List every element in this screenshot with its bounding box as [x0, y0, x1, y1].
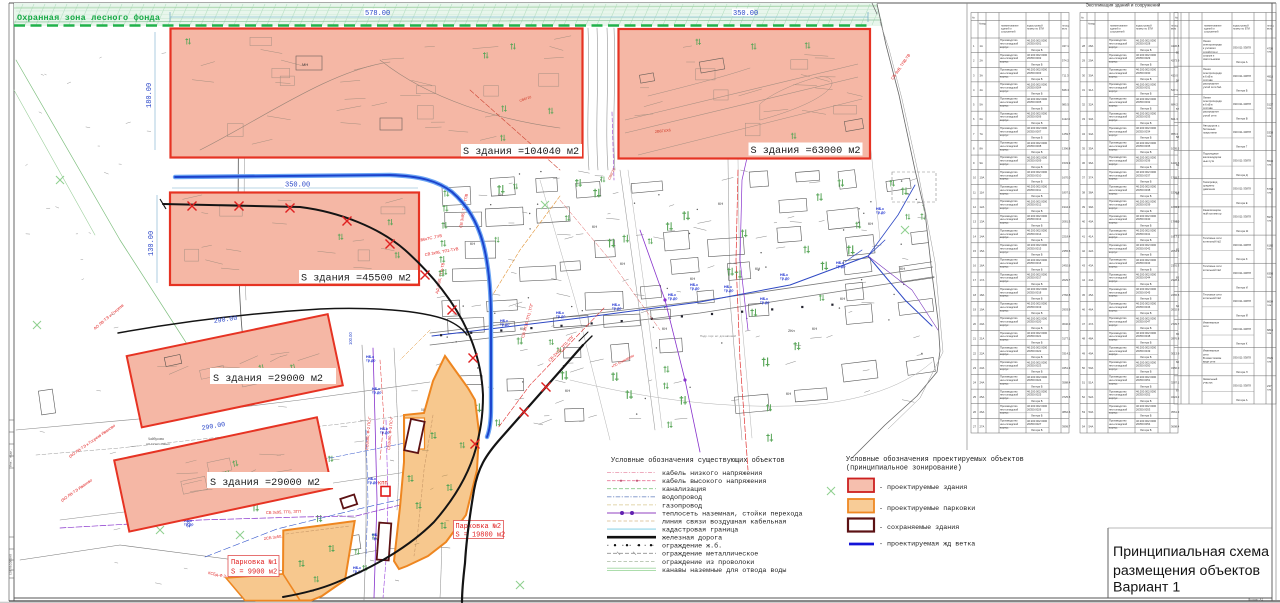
svg-text:53: 53: [1082, 410, 1085, 414]
svg-text:- проектируемые здания: - проектируемые здания: [879, 484, 967, 492]
svg-text:22А: 22А: [980, 351, 985, 355]
svg-text:- проектируемая жд ветка: - проектируемая жд ветка: [879, 541, 975, 549]
svg-text:нно-складской: нно-складской: [1109, 393, 1128, 397]
svg-text:030:011-33878: 030:011-33878: [1233, 102, 1251, 106]
svg-text:нно-складской: нно-складской: [1109, 378, 1128, 382]
svg-text:размещения объектов: размещения объектов: [1113, 563, 1260, 579]
svg-text:1369.7: 1369.7: [1171, 176, 1180, 180]
svg-text:Литера Б: Литера Б: [1140, 297, 1152, 301]
svg-text:корпус: корпус: [1000, 368, 1009, 371]
svg-text:26350:0017: 26350:0017: [1027, 276, 1042, 280]
svg-text:корпус: корпус: [1000, 295, 1009, 298]
svg-text:26350:0039: 26350:0039: [1136, 203, 1151, 207]
svg-text:Производство: Производство: [1000, 68, 1018, 72]
svg-text:нно-складской: нно-складской: [1000, 334, 1019, 338]
svg-text:Производство: Производство: [1109, 331, 1127, 335]
svg-text:Земельный: Земельный: [1203, 377, 1218, 381]
svg-text:26350:0028: 26350:0028: [1136, 42, 1151, 46]
svg-text:распределит: распределит: [1203, 111, 1220, 114]
svg-text:корпус: корпус: [1000, 309, 1009, 312]
svg-text:030:011-33878: 030:011-33878: [1233, 158, 1251, 162]
svg-text:нно-складской: нно-складской: [1109, 188, 1128, 192]
svg-text:Экспликация зданий и сооружени: Экспликация зданий и сооружений: [1086, 2, 1161, 8]
svg-text:Производство: Производство: [1000, 360, 1018, 364]
svg-text:Производство: Производство: [1109, 316, 1127, 320]
svg-text:4А: 4А: [980, 88, 983, 92]
svg-text:в 6 кВ в: в 6 кВ в: [1203, 74, 1213, 78]
svg-text:26350:0045: 26350:0045: [1136, 290, 1151, 294]
svg-text:2355.5: 2355.5: [1062, 249, 1071, 253]
svg-text:26350:0047: 26350:0047: [1136, 320, 1151, 324]
svg-text:22: 22: [973, 351, 976, 355]
svg-text:64: 64: [1176, 304, 1179, 308]
svg-text:котельной №2: котельной №2: [1203, 240, 1221, 244]
svg-text:кадастровая граница: кадастровая граница: [662, 527, 738, 535]
svg-text:нно-складской: нно-складской: [1109, 232, 1128, 236]
svg-text:нно-складской: нно-складской: [1109, 173, 1128, 177]
svg-text:Производство: Производство: [1000, 82, 1018, 86]
svg-text:Производство: Производство: [1109, 170, 1127, 174]
svg-text:31: 31: [1082, 88, 1085, 92]
svg-text:нно-складской: нно-складской: [1109, 305, 1128, 309]
svg-text:Согласовано: Согласовано: [9, 554, 13, 575]
svg-text:44: 44: [1082, 278, 1085, 282]
svg-text:нно-складской: нно-складской: [1000, 246, 1019, 250]
svg-text:нно-складской: нно-складской: [1109, 115, 1128, 119]
svg-text:Производство: Производство: [1000, 199, 1018, 203]
svg-text:3999.7: 3999.7: [1062, 424, 1071, 428]
svg-text:тр.до: тр.до: [690, 287, 700, 291]
svg-text:нно-складской: нно-складской: [1109, 71, 1128, 75]
svg-text:29А: 29А: [1089, 59, 1094, 63]
svg-text:В известковом: В известковом: [1203, 356, 1221, 360]
svg-text:5971: 5971: [1267, 215, 1273, 219]
svg-text:Литера Б: Литера Б: [1140, 106, 1152, 110]
svg-text:сооружений: сооружений: [1110, 30, 1125, 34]
svg-text:Литера Б: Литера Б: [1031, 150, 1043, 154]
svg-text:узлой сети: узлой сети: [1203, 113, 1217, 117]
svg-text:Литера И: Литера И: [1236, 285, 1248, 289]
svg-text:38А: 38А: [1089, 190, 1094, 194]
svg-text:Литера Б: Литера Б: [1140, 326, 1152, 330]
svg-text:350.00: 350.00: [733, 10, 758, 18]
svg-text:ный коллектор: ный коллектор: [1203, 212, 1222, 216]
svg-text:№кад: №кад: [1088, 23, 1095, 26]
svg-text:6604: 6604: [1267, 300, 1273, 304]
svg-text:26350:0004: 26350:0004: [1027, 86, 1042, 90]
svg-text:п.м: п.м: [1267, 332, 1271, 335]
svg-text:нно-складской: нно-складской: [1000, 86, 1019, 90]
svg-text:нно-складской: нно-складской: [1000, 378, 1019, 382]
svg-text:нно-складской: нно-складской: [1000, 144, 1019, 148]
svg-text:нно-складской: нно-складской: [1000, 100, 1019, 104]
svg-text:26350:0040: 26350:0040: [1136, 217, 1151, 221]
svg-text:26А: 26А: [980, 410, 985, 414]
svg-text:30: 30: [1082, 73, 1085, 77]
svg-text:6393: 6393: [1267, 272, 1273, 276]
svg-text:4916: 4916: [1267, 74, 1273, 78]
svg-text:сети: сети: [1203, 353, 1209, 356]
svg-text:нно-складской: нно-складской: [1000, 349, 1019, 353]
svg-text:Производство: Производство: [1000, 287, 1018, 291]
svg-text:нно-складской: нно-складской: [1000, 42, 1019, 46]
svg-text:030:011-33878: 030:011-33878: [1233, 271, 1251, 275]
svg-text:2739.7: 2739.7: [1171, 322, 1180, 326]
svg-text:Производство: Производство: [1109, 38, 1127, 42]
svg-text:Газопровод: Газопровод: [1203, 180, 1218, 184]
svg-text:Литера Б: Литера Б: [1031, 399, 1043, 403]
svg-text:Производство: Производство: [1000, 38, 1018, 42]
svg-text:Литера Б: Литера Б: [1031, 92, 1043, 96]
svg-text:5А: 5А: [980, 103, 983, 107]
svg-text:26350:0019: 26350:0019: [1027, 305, 1042, 309]
svg-text:18: 18: [973, 293, 976, 297]
svg-text:26350:0052: 26350:0052: [1136, 393, 1151, 397]
svg-text:1095.5: 1095.5: [1171, 147, 1180, 151]
svg-text:Производство: Производство: [1000, 228, 1018, 232]
svg-text:Линия: Линия: [1203, 67, 1211, 71]
svg-text:57: 57: [1176, 107, 1179, 111]
svg-text:6815: 6815: [1267, 328, 1273, 332]
svg-text:п.м: п.м: [1267, 304, 1271, 307]
svg-text:Производство: Производство: [1109, 126, 1127, 130]
svg-text:Производство: Производство: [1109, 141, 1127, 145]
svg-text:030:011-33878: 030:011-33878: [1233, 130, 1251, 134]
svg-text:26350:0033: 26350:0033: [1136, 115, 1151, 119]
svg-text:3040.0: 3040.0: [1062, 322, 1071, 326]
svg-text:КН: КН: [786, 391, 791, 396]
svg-text:26350:0054: 26350:0054: [1136, 422, 1151, 426]
svg-text:410.0: 410.0: [1171, 73, 1178, 77]
svg-text:корпус: корпус: [1109, 148, 1118, 151]
svg-text:нно-складской: нно-складской: [1000, 173, 1019, 177]
svg-text:корпус: корпус: [1000, 163, 1009, 166]
svg-text:Литера Б: Литера Б: [1031, 121, 1043, 125]
svg-text:железнодорож: железнодорож: [1203, 156, 1221, 159]
svg-text:нно-складской: нно-складской: [1000, 56, 1019, 60]
svg-text:ограждение ж.б.: ограждение ж.б.: [662, 542, 722, 551]
svg-text:Литера Б: Литера Б: [1031, 311, 1043, 315]
svg-text:корпус: корпус: [1109, 178, 1118, 181]
svg-text:030:011-33878: 030:011-33878: [1233, 243, 1251, 247]
svg-text:Производство: Производство: [1000, 419, 1018, 423]
svg-text:канализация: канализация: [662, 486, 706, 494]
svg-text:корпус: корпус: [1109, 192, 1118, 195]
svg-text:газопровод: газопровод: [662, 502, 702, 510]
svg-text:п.м: п.м: [1267, 191, 1271, 194]
svg-text:52А: 52А: [1089, 395, 1094, 399]
svg-text:Производство: Производство: [1000, 155, 1018, 159]
svg-text:Литера Б: Литера Б: [1031, 106, 1043, 110]
svg-text:корпус: корпус: [1109, 353, 1118, 356]
svg-text:26350:0038: 26350:0038: [1136, 188, 1151, 192]
svg-text:корпус: корпус: [1000, 236, 1009, 239]
svg-text:030:011-33878: 030:011-33878: [1233, 384, 1251, 388]
svg-text:№кад: №кад: [979, 23, 986, 26]
svg-text:кв.м: кв.м: [1062, 28, 1067, 31]
svg-text:Производство: Производство: [1109, 199, 1127, 203]
svg-text:корпус: корпус: [1109, 134, 1118, 137]
svg-text:28А: 28А: [1089, 44, 1094, 48]
svg-text:нно-складской: нно-складской: [1000, 188, 1019, 192]
svg-text:2629.7: 2629.7: [1062, 278, 1071, 282]
svg-text:Литера Б: Литера Б: [1236, 88, 1248, 92]
svg-text:4273.9: 4273.9: [1171, 59, 1180, 63]
svg-text:тр.до: тр.до: [724, 289, 734, 293]
svg-text:67: 67: [1176, 388, 1179, 392]
svg-text:Линия: Линия: [1203, 39, 1211, 43]
svg-text:корпус: корпус: [1000, 324, 1009, 327]
svg-text:26350:0049: 26350:0049: [1136, 349, 1151, 353]
svg-text:корпус: корпус: [1000, 61, 1009, 64]
svg-text:№: №: [1081, 17, 1084, 20]
svg-text:Литера Г: Литера Г: [1236, 145, 1248, 149]
svg-text:Вариант 1: Вариант 1: [1113, 580, 1180, 596]
svg-text:Тепловые сети: Тепловые сети: [1203, 236, 1222, 240]
svg-text:Литера Б: Литера Б: [1140, 428, 1152, 432]
svg-text:нно-складской: нно-складской: [1109, 129, 1128, 133]
svg-text:39: 39: [1082, 205, 1085, 209]
svg-text:виде сети: виде сети: [1203, 361, 1216, 364]
svg-text:3150.0: 3150.0: [1171, 366, 1180, 370]
svg-text:3451.3: 3451.3: [1062, 366, 1071, 370]
svg-text:Литера Б: Литера Б: [1140, 63, 1152, 67]
svg-text:19: 19: [973, 307, 976, 311]
svg-text:30А: 30А: [1089, 73, 1094, 77]
svg-text:26350:0043: 26350:0043: [1136, 261, 1151, 265]
svg-text:Литера А: Литера А: [1236, 60, 1248, 64]
svg-text:Производство: Производство: [1109, 419, 1127, 423]
svg-text:26350:0023: 26350:0023: [1027, 364, 1042, 368]
svg-text:53А: 53А: [1089, 410, 1094, 414]
svg-text:корпус: корпус: [1000, 251, 1009, 254]
svg-text:684.2: 684.2: [1171, 103, 1178, 107]
svg-text:нно-складской: нно-складской: [1000, 407, 1019, 411]
svg-text:номер по БТИ: номер по БТИ: [1027, 27, 1044, 31]
svg-text:51: 51: [1082, 381, 1085, 385]
svg-text:14: 14: [973, 234, 976, 238]
svg-text:1944.2: 1944.2: [1062, 205, 1071, 209]
svg-text:12А: 12А: [980, 205, 985, 209]
svg-text:Литера Б: Литера Б: [1140, 180, 1152, 184]
svg-text:распределит: распределит: [1203, 83, 1220, 86]
svg-text:Парковка №1: Парковка №1: [231, 559, 277, 567]
svg-text:корпус: корпус: [1000, 265, 1009, 268]
svg-text:26350:0020: 26350:0020: [1027, 320, 1042, 324]
svg-text:Производство: Производство: [1109, 345, 1127, 349]
svg-text:тр.до: тр.до: [368, 481, 378, 485]
svg-text:Литера Б: Литера Б: [1031, 428, 1043, 432]
svg-text:36: 36: [1082, 161, 1085, 165]
svg-text:Производство: Производство: [1109, 68, 1127, 72]
svg-text:электропередв: электропередв: [1203, 72, 1222, 75]
svg-text:п.м: п.м: [1267, 107, 1271, 110]
svg-text:участок: участок: [1203, 381, 1213, 384]
svg-text:43А: 43А: [1089, 264, 1094, 268]
svg-text:63: 63: [1176, 276, 1179, 280]
svg-text:Литера Б: Литера Б: [1031, 194, 1043, 198]
svg-text:26350:0007: 26350:0007: [1027, 129, 1042, 133]
svg-text:26350:0015: 26350:0015: [1027, 246, 1042, 250]
svg-text:3314.2: 3314.2: [1062, 351, 1071, 355]
svg-text:49А: 49А: [1089, 351, 1094, 355]
svg-text:5549: 5549: [1267, 159, 1273, 163]
svg-text:Производство: Производство: [1000, 111, 1018, 115]
svg-text:Литера Б: Литера Б: [1031, 180, 1043, 184]
svg-text:Парковка №2: Парковка №2: [456, 523, 502, 531]
svg-text:корпус: корпус: [1000, 280, 1009, 283]
svg-text:корпус: корпус: [1109, 412, 1118, 415]
svg-text:Производство: Производство: [1000, 404, 1018, 408]
svg-text:тр.до: тр.до: [836, 265, 846, 269]
svg-text:Производство: Производство: [1000, 53, 1018, 57]
svg-text:Производство: Производство: [1109, 302, 1127, 306]
svg-text:23А: 23А: [980, 366, 985, 370]
svg-text:корпус: корпус: [1109, 251, 1118, 254]
svg-text:тр.до: тр.до: [380, 431, 390, 435]
svg-text:21: 21: [973, 337, 976, 341]
svg-text:46: 46: [1082, 307, 1085, 311]
svg-text:КН: КН: [620, 261, 625, 266]
svg-text:корпус: корпус: [1000, 148, 1009, 151]
svg-text:26350:0025: 26350:0025: [1027, 393, 1042, 397]
svg-text:26350:0001: 26350:0001: [1027, 42, 1042, 46]
svg-text:среднего: среднего: [1203, 184, 1215, 187]
svg-text:Условные обозначения проектиру: Условные обозначения проектируемых объек…: [846, 455, 1024, 464]
svg-text:тр.до: тр.до: [372, 391, 382, 395]
svg-text:12: 12: [973, 205, 976, 209]
svg-text:2876.8: 2876.8: [1171, 337, 1180, 341]
svg-text:37: 37: [1082, 176, 1085, 180]
svg-text:нно-складской: нно-складской: [1000, 203, 1019, 207]
svg-text:Подъездные: Подъездные: [1203, 152, 1219, 156]
svg-text:26350:0035: 26350:0035: [1136, 144, 1151, 148]
svg-text:15А: 15А: [980, 249, 985, 253]
svg-text:хозяйства и: хозяйства и: [1203, 50, 1218, 54]
svg-text:61: 61: [1176, 219, 1179, 223]
svg-text:узлой сети №1: узлой сети №1: [1203, 85, 1222, 89]
svg-text:65: 65: [1176, 332, 1179, 336]
svg-text:S = 19800 м2: S = 19800 м2: [456, 532, 506, 540]
svg-text:26350:0024: 26350:0024: [1027, 378, 1042, 382]
svg-text:237: 237: [1267, 384, 1272, 388]
svg-text:26350:0008: 26350:0008: [1027, 144, 1042, 148]
svg-text:тр.до: тр.до: [612, 307, 622, 311]
svg-text:3698.4: 3698.4: [1171, 424, 1180, 428]
svg-text:нно-складской: нно-складской: [1109, 86, 1128, 90]
svg-text:17А: 17А: [980, 278, 985, 282]
svg-text:Производство: Производство: [1000, 170, 1018, 174]
svg-text:35: 35: [1082, 147, 1085, 151]
svg-text:Условные обозначения существую: Условные обозначения существующих объект…: [611, 456, 785, 465]
svg-text:4705: 4705: [1267, 46, 1273, 50]
svg-text:2191.3: 2191.3: [1171, 264, 1180, 268]
svg-text:кабель высокого напряжения: кабель высокого напряжения: [662, 477, 766, 486]
svg-text:985.5: 985.5: [1062, 103, 1069, 107]
svg-text:КН: КН: [812, 326, 817, 331]
svg-text:Литера Б: Литера Б: [1031, 209, 1043, 213]
svg-text:Производство: Производство: [1000, 126, 1018, 130]
svg-text:18А: 18А: [980, 293, 985, 297]
svg-text:Литера Б: Литера Б: [1031, 253, 1043, 257]
svg-text:Литера Б: Литера Б: [1031, 355, 1043, 359]
svg-text:26350:0018: 26350:0018: [1027, 290, 1042, 294]
svg-text:тр.до: тр.до: [668, 297, 678, 301]
svg-text:сооружений: сооружений: [1001, 30, 1016, 34]
svg-text:Литера Б: Литера Б: [1140, 267, 1152, 271]
svg-text:(принципиальное зонирование): (принципиальное зонирование): [846, 465, 962, 473]
svg-text:1122.6: 1122.6: [1062, 117, 1071, 121]
svg-text:нно-складской: нно-складской: [1000, 422, 1019, 426]
svg-text:КН: КН: [565, 388, 570, 393]
svg-text:нно-складской: нно-складской: [1109, 144, 1128, 148]
svg-text:2Кн: 2Кн: [788, 328, 795, 333]
svg-text:КН: КН: [718, 201, 723, 206]
svg-text:3287.1: 3287.1: [1171, 381, 1180, 385]
svg-text:2А: 2А: [980, 59, 983, 63]
svg-text:ограждение из проволоки: ограждение из проволоки: [662, 559, 754, 567]
svg-text:26350:0012: 26350:0012: [1027, 203, 1042, 207]
svg-text:корпус: корпус: [1109, 339, 1118, 342]
svg-text:32А: 32А: [1089, 103, 1094, 107]
svg-text:котельной №2: котельной №2: [1203, 268, 1221, 272]
svg-text:42А: 42А: [1089, 249, 1094, 253]
svg-text:Инженерные: Инженерные: [1203, 349, 1220, 353]
svg-text:нно-складской: нно-складской: [1000, 276, 1019, 280]
svg-text:27: 27: [973, 424, 976, 428]
svg-text:Литера Й: Литера Й: [1236, 314, 1248, 318]
svg-text:38: 38: [1082, 190, 1085, 194]
svg-text:Литера Б: Литера Б: [1140, 136, 1152, 140]
svg-text:железная дорога: железная дорога: [662, 535, 722, 543]
svg-text:тр.до: тр.до: [556, 315, 566, 319]
svg-text:Производство: Производство: [1109, 258, 1127, 262]
svg-text:26350:0050: 26350:0050: [1136, 364, 1151, 368]
svg-text:54: 54: [1082, 424, 1085, 428]
svg-text:6182: 6182: [1267, 243, 1273, 247]
svg-text:41: 41: [1082, 234, 1085, 238]
svg-text:40А: 40А: [1089, 220, 1094, 224]
svg-text:26350:0011: 26350:0011: [1027, 188, 1042, 192]
svg-text:2081.3: 2081.3: [1062, 220, 1071, 224]
svg-text:корпус: корпус: [1000, 207, 1009, 210]
svg-text:Инженерные: Инженерные: [1203, 321, 1220, 325]
svg-text:S здания =29000 м2: S здания =29000 м2: [210, 478, 320, 489]
svg-text:котельной №2: котельной №2: [1203, 296, 1221, 300]
svg-text:Производство: Производство: [1000, 185, 1018, 189]
svg-text:нно-складской: нно-складской: [1109, 407, 1128, 411]
svg-text:номер по БТИ: номер по БТИ: [1136, 27, 1153, 31]
svg-text:нно-складской: нно-складской: [1109, 349, 1128, 353]
svg-text:Литера Б: Литера Б: [1031, 340, 1043, 344]
svg-text:S здания =63000 м2: S здания =63000 м2: [751, 146, 861, 157]
svg-text:Литера Б: Литера Б: [1031, 267, 1043, 271]
svg-text:Литера Б: Литера Б: [1031, 136, 1043, 140]
svg-text:Производство: Производство: [1109, 389, 1127, 393]
svg-text:нно-складской: нно-складской: [1000, 261, 1019, 265]
svg-text:26350:0003: 26350:0003: [1027, 71, 1042, 75]
svg-text:13: 13: [973, 220, 976, 224]
svg-text:26350:0036: 26350:0036: [1136, 159, 1151, 163]
svg-text:100.00: 100.00: [348, 332, 353, 345]
svg-text:Производство: Производство: [1000, 302, 1018, 306]
svg-text:Производство: Производство: [1109, 155, 1127, 159]
svg-text:26350:0010: 26350:0010: [1027, 173, 1042, 177]
svg-text:Литера Б: Литера Б: [1031, 165, 1043, 169]
svg-text:Литера К: Литера К: [1236, 342, 1248, 346]
svg-text:кв.м: кв.м: [1267, 28, 1272, 31]
svg-text:Канализацион: Канализацион: [1203, 208, 1221, 212]
